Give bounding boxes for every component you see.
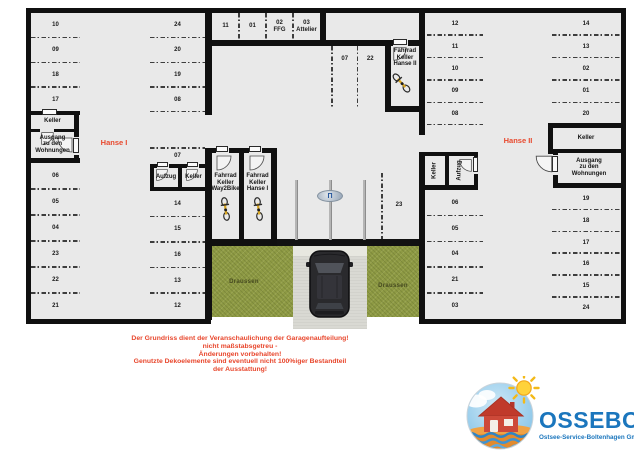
parking-column-h1-left-bottom: 06 05 04 23 22 21 xyxy=(31,163,80,319)
room-label-bike-hanse1: Fahrrad Keller Hanse I xyxy=(244,172,271,194)
parking-space: 23 xyxy=(31,241,80,267)
parking-space: 05 xyxy=(31,189,80,215)
dash-line xyxy=(150,147,205,149)
door-leaf xyxy=(187,162,198,167)
room-label-keller: Keller xyxy=(553,128,619,148)
disclaimer-line: Der Grundriss dient der Veranschaulichun… xyxy=(60,335,420,343)
parking-space: 14 xyxy=(552,13,620,35)
room-label-bike-way2bike: Fahrrad Keller Way2Bike xyxy=(212,172,239,194)
door-leaf xyxy=(473,157,478,172)
parking-space: 02 FFG xyxy=(266,13,293,40)
parking-space: 03 xyxy=(427,293,483,319)
parking-space: 03 Attelier xyxy=(293,13,320,40)
parking-space: 06 xyxy=(427,190,483,216)
parking-space: 16 xyxy=(552,253,620,275)
parking-column-h2-right-bottom: 19 18 17 16 15 24 xyxy=(552,188,620,319)
disclaimer-line: Änderungen vorbehalten! xyxy=(60,351,420,359)
parking-space: 12 xyxy=(150,293,205,319)
parking-space: 12 xyxy=(427,13,483,35)
outside-label-right: Draussen xyxy=(367,283,419,289)
parking-space: 23 xyxy=(390,202,408,208)
disclaimer-line: der Ausstattung! xyxy=(60,366,420,374)
parking-space: 13 xyxy=(150,268,205,294)
parking-space: 10 xyxy=(427,58,483,80)
parking-space: 24 xyxy=(150,13,205,38)
room-label-ausgang: Ausgang zu den Wohnungen xyxy=(559,153,619,182)
parking-column-h2-left-bottom: 06 05 04 21 03 xyxy=(427,190,483,319)
parking-space: 22 xyxy=(358,46,384,107)
parking-space: 09 xyxy=(427,80,483,102)
parking-space: 10 xyxy=(31,13,80,38)
door-leaf xyxy=(393,39,407,45)
wall xyxy=(445,152,449,190)
wall xyxy=(419,152,425,324)
parking-column-h2-right-top: 14 13 02 01 20 xyxy=(552,13,620,125)
section-label-hanse1: Hanse I xyxy=(94,138,134,147)
parking-space: 09 xyxy=(31,38,80,63)
parking-space: 16 xyxy=(150,242,205,268)
wall xyxy=(205,240,277,246)
parking-space: 20 xyxy=(552,103,620,125)
door-arc-icon xyxy=(534,154,554,174)
parking-row-h2-pair: 07 22 xyxy=(332,46,383,107)
parking-space: 20 xyxy=(150,38,205,63)
parking-space: 24 xyxy=(552,297,620,319)
parking-column-h2-left-top: 12 11 10 09 08 xyxy=(427,13,483,125)
room-label-bike-hanse2: Fahrrad Keller Hanse II xyxy=(390,48,420,68)
parking-sign-icon: Π xyxy=(317,190,343,202)
parking-space: 19 xyxy=(150,63,205,88)
parking-space: 01 xyxy=(552,80,620,102)
car-icon xyxy=(306,250,353,318)
wall xyxy=(205,8,212,115)
parking-space: 07 xyxy=(150,153,205,159)
parking-space: 08 xyxy=(150,87,205,112)
parking-space: 14 xyxy=(150,191,205,217)
parking-space: 22 xyxy=(31,267,80,293)
parking-space: 04 xyxy=(427,242,483,268)
wall xyxy=(320,8,326,46)
room-label-aufzug-rotated: Aufzug xyxy=(454,157,467,185)
parking-space: 01 xyxy=(239,13,266,40)
outside-label-left: Draussen xyxy=(214,279,274,285)
parking-space: 15 xyxy=(150,217,205,243)
parking-space: 05 xyxy=(427,216,483,242)
wall xyxy=(423,152,478,156)
wall xyxy=(553,183,624,188)
parking-space: 17 xyxy=(552,232,620,254)
parking-space: 11 xyxy=(427,35,483,57)
parking-space: 11 xyxy=(212,13,239,40)
wall xyxy=(239,148,244,245)
parking-space: 06 xyxy=(31,163,80,189)
parking-sign-glyph: Π xyxy=(327,193,332,200)
dash-line xyxy=(381,173,383,239)
garage-floor-plan: Draussen Draussen Draussen Π xyxy=(0,0,640,453)
logo-subtitle: Ostsee-Service-Boltenhagen GmbH xyxy=(539,434,634,441)
room-label-aufzug: Aufzug xyxy=(154,168,178,187)
disclaimer-line: Genutzte Dekoelemente sind eventuell nic… xyxy=(60,358,420,366)
lane-post xyxy=(329,180,332,240)
wall xyxy=(26,158,80,163)
lane-post xyxy=(363,180,366,240)
lane-post xyxy=(295,180,298,240)
parking-column-h1-mid-bottom: 14 15 16 13 12 xyxy=(150,191,205,319)
wall xyxy=(385,106,425,112)
parking-column-h1-left-top: 10 09 18 17 xyxy=(31,13,80,112)
room-label-keller: Keller xyxy=(31,114,74,128)
parking-space: 18 xyxy=(552,210,620,232)
logo-wordmark: OSSEBO xyxy=(539,407,634,433)
wall xyxy=(419,8,425,135)
parking-space: 19 xyxy=(552,188,620,210)
parking-space: 04 xyxy=(31,215,80,241)
parking-space: 02 xyxy=(552,58,620,80)
parking-space: 18 xyxy=(31,63,80,88)
door-leaf xyxy=(249,146,261,152)
room-label-keller-rotated: Keller xyxy=(429,157,442,185)
room-label-keller: Keller xyxy=(182,168,205,187)
door-leaf xyxy=(216,146,228,152)
parking-space: 07 xyxy=(332,46,358,107)
grass-area-right xyxy=(367,246,419,317)
wall xyxy=(271,148,277,245)
room-label-ausgang: Ausgang zu den Wohnungen xyxy=(31,131,74,158)
parking-space: 15 xyxy=(552,275,620,297)
parking-column-h1-mid-top: 24 20 19 08 xyxy=(150,13,205,112)
door-leaf xyxy=(157,162,168,167)
door-arc-icon xyxy=(215,154,233,172)
door-arc-icon xyxy=(248,154,266,172)
section-label-hanse2: Hanse II xyxy=(496,136,540,145)
disclaimer-text: Der Grundriss dient der Veranschaulichun… xyxy=(60,335,420,374)
parking-space: 08 xyxy=(427,103,483,125)
parking-row-top: 11 01 02 FFG 03 Attelier xyxy=(212,13,320,40)
parking-space: 13 xyxy=(552,35,620,57)
parking-space: 21 xyxy=(31,293,80,319)
wall xyxy=(423,185,478,190)
ossebo-logo: OSSEBO Ostsee-Service-Boltenhagen GmbH xyxy=(460,376,634,453)
disclaimer-line: nicht maßstabsgetreu - xyxy=(60,343,420,351)
parking-space: 21 xyxy=(427,267,483,293)
